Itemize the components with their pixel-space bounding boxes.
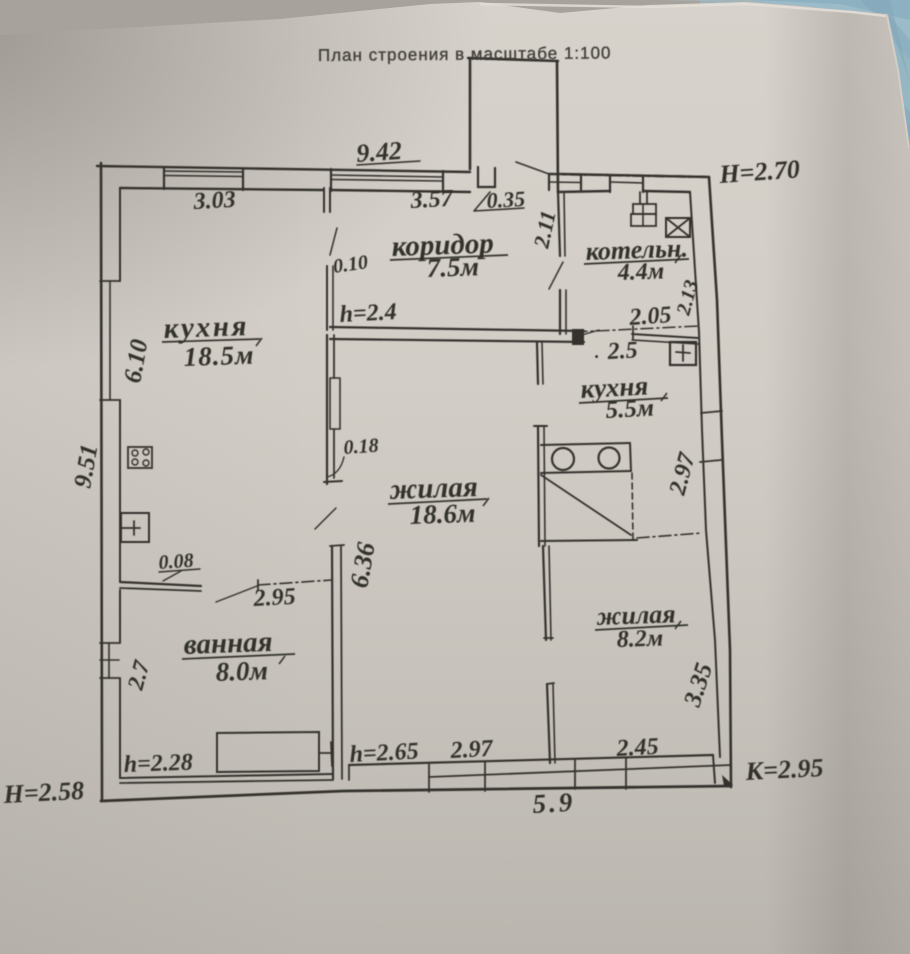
svg-text:2.45: 2.45 — [615, 734, 659, 762]
svg-text:8.2м: 8.2м — [616, 625, 663, 653]
svg-text:5.9: 5.9 — [532, 787, 576, 819]
svg-text:План строения в масштабе 1:100: План строения в масштабе 1:100 — [318, 43, 612, 65]
svg-text:3.57: 3.57 — [409, 186, 454, 214]
svg-text:0.35: 0.35 — [486, 186, 526, 213]
svg-text:2.95: 2.95 — [252, 584, 296, 612]
svg-text:2.97: 2.97 — [449, 736, 494, 764]
svg-text:Н=2.58: Н=2.58 — [2, 776, 85, 809]
svg-text:К=2.95: К=2.95 — [744, 753, 824, 786]
svg-text:8.0м: 8.0м — [215, 655, 268, 687]
svg-text:18.5м: 18.5м — [183, 340, 255, 372]
svg-text:.: . — [595, 342, 600, 362]
svg-text:2.05: 2.05 — [628, 302, 673, 331]
svg-text:2.5: 2.5 — [606, 337, 638, 365]
svg-text:0.08: 0.08 — [158, 550, 194, 574]
svg-text:3.03: 3.03 — [192, 187, 236, 215]
svg-text:h=2.28: h=2.28 — [123, 750, 193, 778]
svg-text:h=2.65: h=2.65 — [349, 738, 419, 768]
svg-text:h=2.4: h=2.4 — [339, 299, 397, 328]
svg-text:0.18: 0.18 — [343, 435, 379, 459]
svg-text:9.42: 9.42 — [355, 136, 402, 168]
svg-text:Н=2.70: Н=2.70 — [717, 154, 800, 189]
